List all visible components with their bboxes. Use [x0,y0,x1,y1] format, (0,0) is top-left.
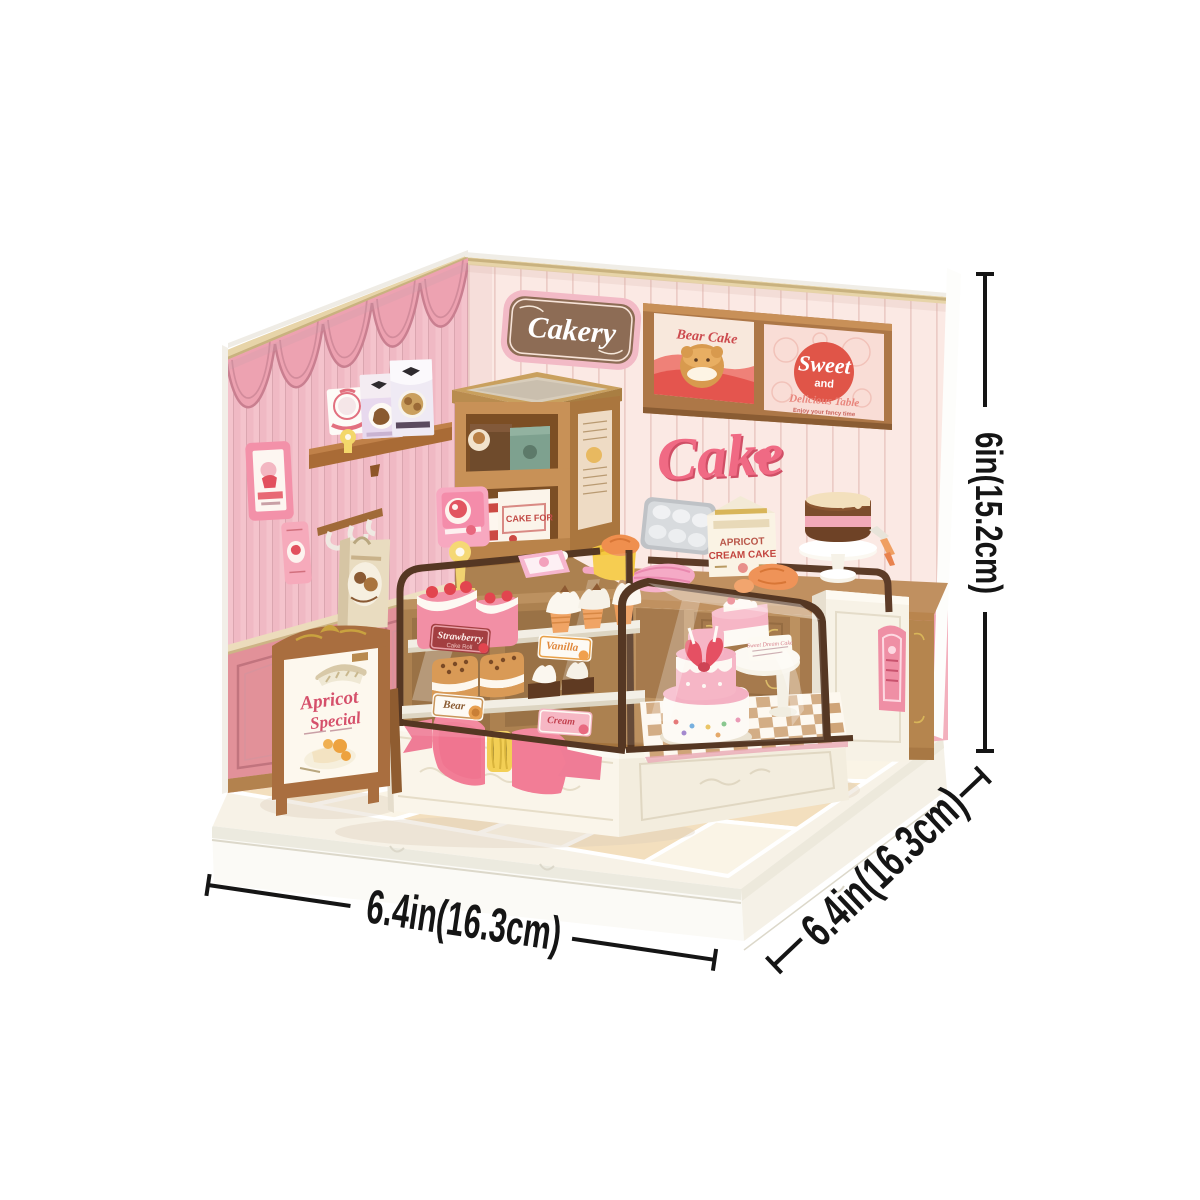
svg-text:CAKE FOR: CAKE FOR [506,512,554,524]
svg-text:Cream: Cream [547,715,576,728]
svg-text:Vanilla: Vanilla [545,640,579,654]
svg-text:Bear: Bear [442,699,467,713]
svg-text:APRICOT: APRICOT [719,536,764,549]
svg-text:and: and [814,377,834,390]
svg-text:Sweet: Sweet [797,350,852,379]
svg-text:6in(15.2cm): 6in(15.2cm) [967,432,1009,594]
